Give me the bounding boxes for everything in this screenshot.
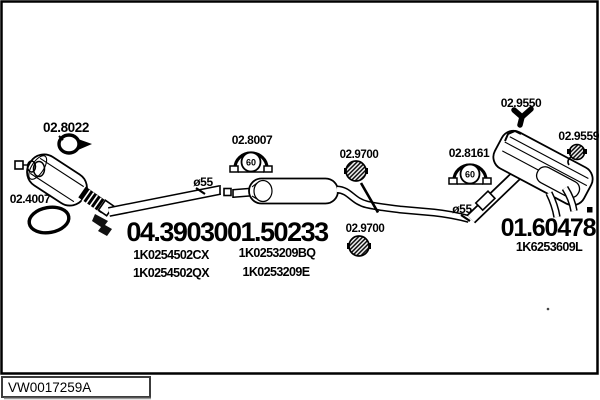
speck [547,308,550,311]
rear-muffler-part-number: 01.60478 [501,214,597,242]
rubber-hanger-mid-2-label: 02.9700 [346,223,385,235]
flange-gasket-mid-icon: 60 [230,153,272,173]
front-straight-pipe [109,185,220,212]
flange-gasket-rear-icon: 60 [449,165,491,185]
mid-muffler-oe-ref-1: 1K0253209BQ [239,246,317,260]
pipe-diameter-front-label: ø55 [193,175,213,189]
front-pipe-oe-ref-1: 1K0254502CX [133,248,210,262]
ring-gasket-icon [27,204,71,236]
mid-muffler-part-number: 01.50233 [227,217,329,247]
flange-gasket-rear-label: 02.8161 [449,146,490,160]
joint-gasket-square [224,189,231,196]
rubber-hanger-mid-2-icon [347,236,371,256]
bracket-rear-top-icon [514,109,531,125]
front-pipe-oe-ref-2: 1K0254502QX [133,266,210,280]
drawing-code-text: VW0017259A [8,380,91,395]
diagram-page: 60 60 02.8022 02.4007 02.8007 ø55 02.970… [0,0,600,400]
bracket-rear-top-label: 02.9550 [501,96,542,110]
ring-gasket-front-label: 02.4007 [10,192,51,206]
rubber-hanger-mid-1-icon [344,161,368,181]
gasket-diameter-text: 60 [246,158,256,168]
clamp-front-label: 02.8022 [43,120,89,135]
pipe-diameter-rear-label: ø55 [452,202,472,216]
mid-muffler-drawing [233,179,469,220]
exhaust-system-diagram: 60 60 02.8022 02.4007 02.8007 ø55 02.970… [0,0,600,400]
front-pipe-part-number: 04.39030 [126,217,227,247]
mid-muffler-oe-ref-2: 1K0253209E [243,265,310,279]
clamp-icon [59,135,92,153]
front-flange [15,161,23,169]
gasket-diameter-text: 60 [465,170,475,180]
pipe-bracket [92,214,112,236]
rear-end-marker [587,207,593,213]
rubber-hanger-mid-1-label: 02.9700 [340,149,379,161]
flange-gasket-mid-label: 02.8007 [232,133,273,147]
drawing-code-box: VW0017259A [2,377,151,399]
flex-pipe-section [82,190,114,216]
mid-muffler-body [249,179,338,204]
rubber-hanger-rear-label: 02.9559 [558,129,599,143]
rear-muffler-oe-ref-1: 1K6253609L [516,240,583,254]
mid-muffler-outlet-pipe [337,190,469,220]
